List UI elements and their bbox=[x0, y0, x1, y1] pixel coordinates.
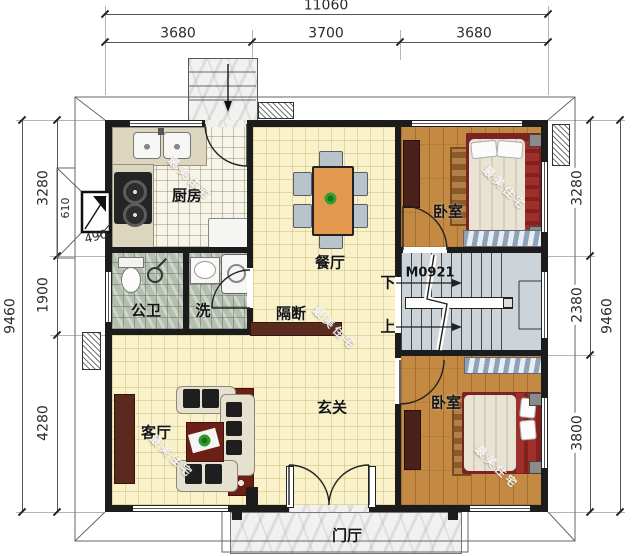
stair-door-opening bbox=[395, 277, 401, 333]
living-window bbox=[133, 505, 228, 512]
wash-basin-bowl bbox=[194, 261, 216, 279]
ac-outdoor-unit bbox=[258, 102, 294, 119]
wall-stair-bottom bbox=[395, 350, 548, 356]
extension-line bbox=[105, 6, 106, 95]
bed-pillow bbox=[470, 140, 498, 160]
ac-outdoor-unit bbox=[552, 124, 570, 166]
bed-blanket bbox=[525, 141, 539, 233]
entry-steps-landing bbox=[188, 58, 258, 122]
porch-stub bbox=[448, 512, 458, 520]
wash-door-opening bbox=[247, 268, 253, 308]
dim-left-total: 9460 bbox=[3, 296, 18, 336]
bedroom-top-window bbox=[412, 120, 522, 127]
toilet-bowl bbox=[121, 267, 141, 293]
sofa-cushion bbox=[226, 440, 242, 455]
sofa-cushion bbox=[183, 389, 200, 408]
wall-pier bbox=[246, 487, 258, 505]
bathroom-window bbox=[105, 272, 112, 322]
dim-top-seg1: 3680 bbox=[158, 26, 198, 41]
striped-mat bbox=[464, 357, 543, 374]
stair-window bbox=[541, 272, 548, 338]
faucet bbox=[158, 128, 164, 135]
striped-mat bbox=[463, 230, 543, 247]
label-wash: 洗 bbox=[195, 300, 210, 321]
bedroom-top-side-window bbox=[541, 162, 548, 232]
dim-right-total: 9460 bbox=[600, 296, 615, 336]
label-partition: 隔断 bbox=[276, 303, 306, 324]
wall-bedroom-top-left bbox=[395, 120, 401, 253]
wall-bath-bottom bbox=[105, 329, 253, 335]
entry-door-post bbox=[368, 466, 376, 508]
floor-plan: 11060 3680 3700 3680 9460 3280 1900 4280… bbox=[0, 0, 640, 556]
wall-bath-divider bbox=[183, 253, 189, 335]
bedroom-bottom-window bbox=[470, 505, 530, 512]
extension-line bbox=[252, 30, 253, 60]
dim-line bbox=[620, 120, 621, 512]
ac-outdoor-unit bbox=[82, 332, 101, 370]
extension-line bbox=[548, 6, 549, 95]
washing-machine-drum bbox=[227, 264, 246, 283]
label-stair-door-code: M0921 bbox=[405, 266, 454, 281]
dim-line bbox=[105, 14, 548, 15]
stair-handrail bbox=[405, 297, 513, 309]
bedroom-bottom-door-opening bbox=[395, 358, 401, 404]
sofa-cushion bbox=[202, 389, 219, 408]
shower-icon bbox=[147, 267, 163, 283]
dim-line bbox=[22, 120, 23, 512]
dim-left-seg2: 1900 bbox=[36, 275, 51, 315]
dining-chair bbox=[293, 172, 312, 196]
bed-pillow bbox=[496, 140, 523, 159]
wall-stair-left bbox=[395, 333, 401, 350]
label-stairs-up: 上 bbox=[380, 316, 395, 337]
fridge bbox=[208, 218, 250, 248]
stair-newel bbox=[503, 298, 513, 308]
tv-cabinet bbox=[404, 410, 421, 470]
dim-line bbox=[57, 120, 58, 512]
dining-chair bbox=[293, 204, 312, 228]
kitchen-window bbox=[130, 120, 202, 127]
dim-right-seg2: 2380 bbox=[570, 285, 585, 325]
label-bathroom: 公卫 bbox=[131, 300, 161, 321]
dim-right-seg3: 3800 bbox=[570, 413, 585, 453]
bed-pillow bbox=[519, 419, 537, 440]
label-stairs-down: 下 bbox=[380, 272, 395, 293]
sofa-cushion bbox=[205, 464, 222, 484]
kitchen-door-opening bbox=[205, 120, 247, 127]
wall-kitchen-bath bbox=[105, 247, 253, 253]
porch-stub bbox=[232, 512, 242, 520]
label-bedroom-bottom: 卧室 bbox=[431, 392, 461, 413]
extension-line bbox=[16, 512, 105, 513]
wall-stair-left bbox=[395, 253, 401, 277]
entry-door-opening bbox=[289, 505, 369, 512]
bedroom-bottom-side-window bbox=[541, 398, 548, 468]
tv-cabinet bbox=[403, 140, 420, 208]
table-plant bbox=[324, 192, 337, 205]
sofa-cushion bbox=[226, 421, 242, 436]
dim-right-seg1: 3280 bbox=[570, 168, 585, 208]
dim-top-seg2: 3700 bbox=[306, 26, 346, 41]
label-bedroom-top: 卧室 bbox=[433, 201, 463, 222]
dim-line bbox=[105, 42, 548, 43]
tv-cabinet bbox=[114, 394, 135, 484]
dim-left-seg3: 4280 bbox=[36, 403, 51, 443]
dim-line bbox=[590, 120, 591, 512]
coffee-table-plant bbox=[198, 434, 211, 447]
entry-door-post bbox=[286, 466, 294, 508]
stove-burner bbox=[123, 203, 147, 227]
dim-top-seg3: 3680 bbox=[454, 26, 494, 41]
dim-left-seg1: 3280 bbox=[36, 168, 51, 208]
kitchen-sink bbox=[133, 132, 161, 159]
stove-burner bbox=[123, 180, 147, 204]
dim-top-total: 11060 bbox=[302, 0, 351, 14]
label-dining: 餐厅 bbox=[315, 252, 345, 273]
extension-line bbox=[400, 30, 401, 60]
sofa-cushion bbox=[226, 402, 242, 417]
label-porch: 门厅 bbox=[332, 525, 362, 546]
label-foyer: 玄关 bbox=[317, 397, 347, 418]
dim-flue-depth: 610 bbox=[60, 196, 72, 221]
bedroom-top-door-opening bbox=[403, 247, 447, 253]
extension-line bbox=[16, 120, 105, 121]
